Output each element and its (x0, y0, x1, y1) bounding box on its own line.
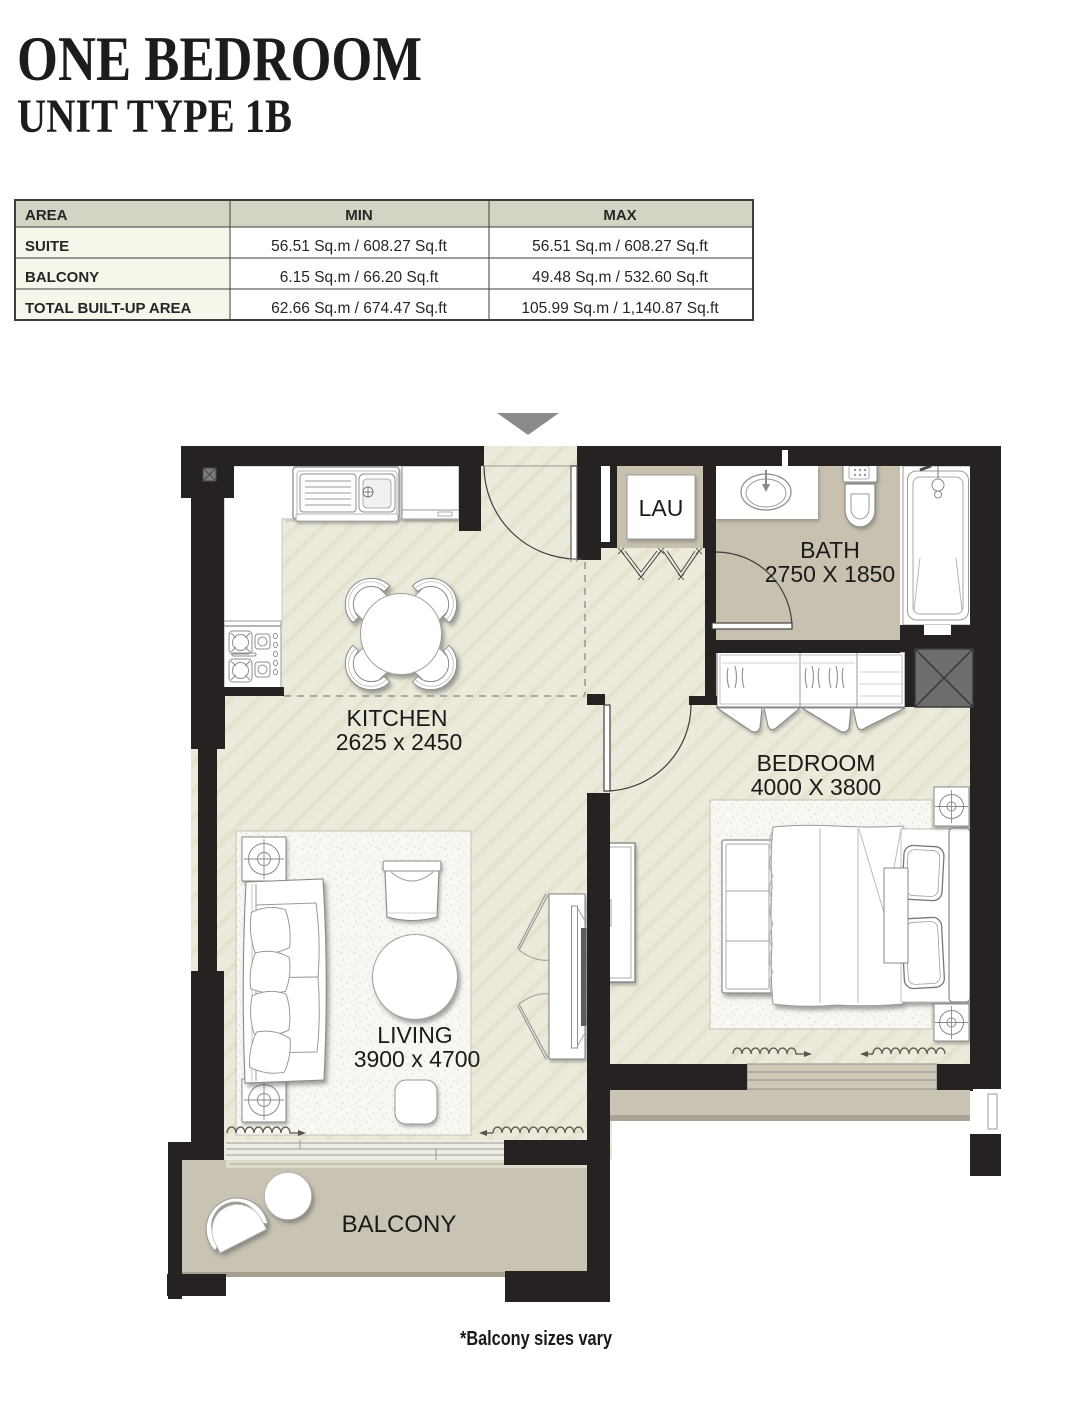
svg-text:BATH: BATH (800, 537, 860, 563)
svg-text:MIN: MIN (345, 207, 373, 224)
svg-text:2750 X 1850: 2750 X 1850 (765, 561, 895, 587)
svg-text:62.66 Sq.m / 674.47 Sq.ft: 62.66 Sq.m / 674.47 Sq.ft (271, 300, 447, 317)
svg-text:LAU: LAU (639, 495, 684, 521)
svg-text:LIVING: LIVING (377, 1022, 452, 1048)
svg-text:SUITE: SUITE (25, 238, 69, 255)
svg-text:105.99 Sq.m / 1,140.87 Sq.ft: 105.99 Sq.m / 1,140.87 Sq.ft (521, 300, 719, 317)
svg-text:KITCHEN: KITCHEN (347, 705, 448, 731)
svg-text:6.15 Sq.m / 66.20 Sq.ft: 6.15 Sq.m / 66.20 Sq.ft (280, 269, 439, 286)
svg-text:AREA: AREA (25, 207, 68, 224)
svg-text:BEDROOM: BEDROOM (757, 750, 876, 776)
svg-text:ONE BEDROOM: ONE BEDROOM (17, 24, 422, 94)
svg-text:TOTAL BUILT-UP AREA: TOTAL BUILT-UP AREA (25, 300, 192, 317)
svg-text:2625 x 2450: 2625 x 2450 (336, 729, 463, 755)
svg-text:3900 x 4700: 3900 x 4700 (354, 1046, 481, 1072)
svg-text:UNIT TYPE 1B: UNIT TYPE 1B (17, 90, 292, 143)
svg-text:BALCONY: BALCONY (342, 1211, 457, 1238)
svg-text:*Balcony sizes vary: *Balcony sizes vary (460, 1328, 613, 1350)
svg-text:56.51 Sq.m / 608.27 Sq.ft: 56.51 Sq.m / 608.27 Sq.ft (532, 238, 708, 255)
svg-text:4000 X 3800: 4000 X 3800 (751, 774, 881, 800)
svg-text:MAX: MAX (603, 207, 636, 224)
svg-text:49.48 Sq.m / 532.60 Sq.ft: 49.48 Sq.m / 532.60 Sq.ft (532, 269, 708, 286)
svg-text:56.51 Sq.m / 608.27 Sq.ft: 56.51 Sq.m / 608.27 Sq.ft (271, 238, 447, 255)
svg-text:BALCONY: BALCONY (25, 269, 99, 286)
